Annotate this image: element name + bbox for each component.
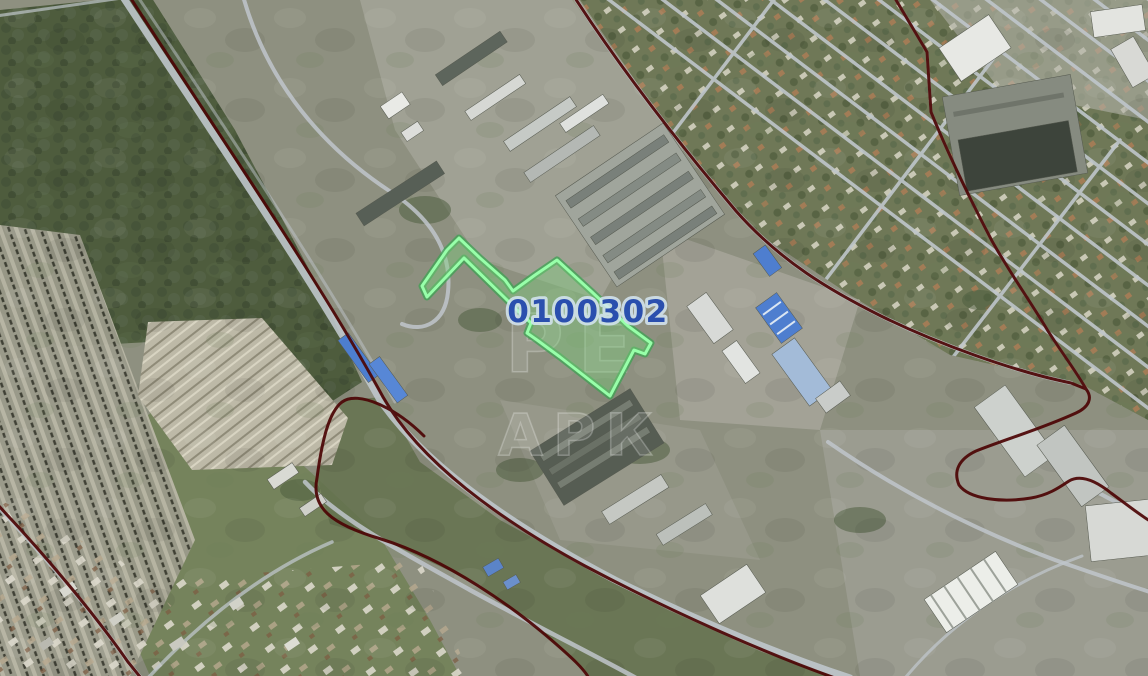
parcel-label: 0100302: [507, 294, 669, 330]
parcel-label-group: 0100302 0100302: [507, 294, 669, 330]
map-viewport[interactable]: РЕ АРК 0100302 0100302: [0, 0, 1148, 676]
satellite-map-canvas[interactable]: РЕ АРК 0100302 0100302: [0, 0, 1148, 676]
watermark-line2: АРК: [498, 401, 663, 469]
